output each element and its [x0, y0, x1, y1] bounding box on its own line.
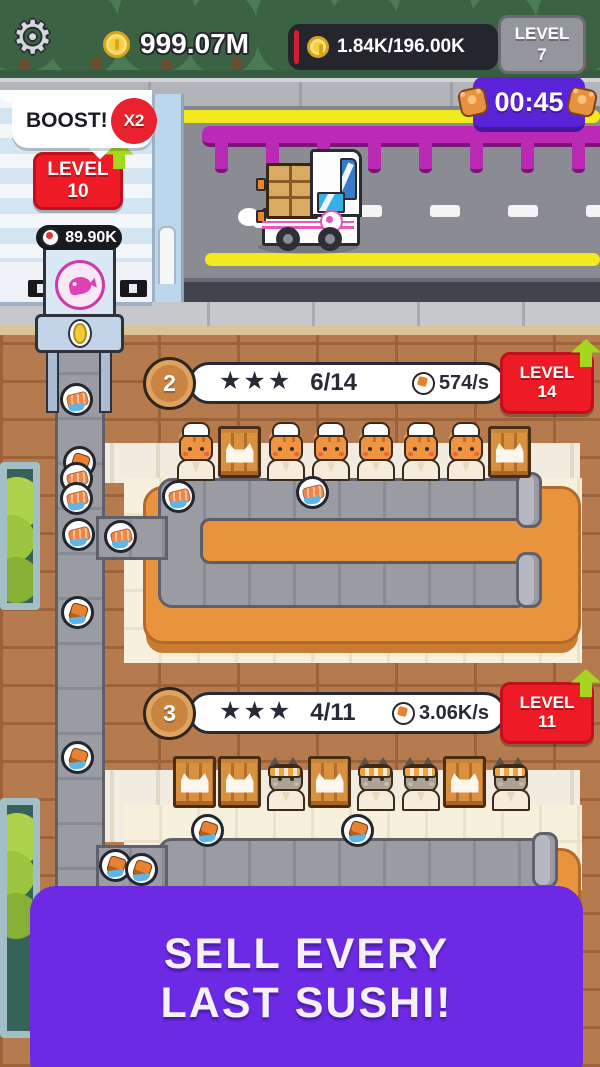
coin-icon: [307, 36, 329, 58]
station-number-badge: 3: [143, 687, 196, 740]
station-slot: [262, 424, 307, 478]
gray-cat: [355, 758, 393, 808]
station-slot: [397, 754, 442, 808]
conveyor-loop-center: [200, 518, 533, 564]
chef-hat-icon: [362, 422, 390, 437]
machine-base: [35, 314, 124, 353]
guardrail-post: [368, 141, 381, 173]
sushi-plate: [341, 814, 374, 847]
player-level-badge[interactable]: LEVEL7: [498, 15, 586, 74]
cat-silhouette-icon: [226, 772, 254, 793]
boost-label: BOOST!: [26, 109, 108, 133]
timer-value: 00:45: [494, 87, 563, 118]
station-number-badge: 2: [143, 357, 196, 410]
chef-hat-icon: [317, 422, 345, 437]
sushi-plate: [125, 853, 158, 886]
locked-crate[interactable]: [308, 756, 351, 808]
order-progress: 4/11: [310, 699, 355, 727]
sushi-plate: [60, 482, 93, 515]
cat-body: [357, 459, 395, 481]
orange-cat: [265, 428, 303, 478]
orange-cat: [310, 428, 348, 478]
station-slot: [487, 754, 532, 808]
sushi-plate: [61, 596, 94, 629]
conveyor-roller: [516, 472, 542, 528]
guardrail-post: [470, 141, 483, 173]
guardrail-post: [521, 141, 534, 173]
station-2-header: 2 ★★★ 6/14 574/s LEVEL14: [143, 352, 594, 414]
headband-icon: [358, 766, 392, 778]
objective-banner[interactable]: SELL EVERY LAST SUSHI!: [30, 886, 583, 1067]
cat-head: [314, 434, 348, 462]
banner-line-2: LAST SUSHI!: [161, 979, 453, 1028]
machine-leg: [99, 345, 112, 413]
road-yellow-line-bottom: [205, 253, 600, 266]
sushi-plate: [191, 814, 224, 847]
star-rating: ★★★: [219, 366, 292, 396]
station-2-cats: [172, 424, 532, 478]
station-level-button[interactable]: LEVEL11: [500, 682, 594, 744]
chef-hat-icon: [182, 422, 210, 437]
cat-head: [449, 434, 483, 462]
production-rate: 3.06K/s: [419, 702, 489, 725]
cat-body: [402, 789, 440, 811]
headband-icon: [493, 766, 527, 778]
banner-line-1: SELL EVERY: [164, 930, 449, 979]
machine-leg: [46, 345, 59, 413]
cat-silhouette-icon: [181, 772, 209, 793]
cat-body: [267, 459, 305, 481]
fish-icon: [67, 274, 92, 295]
station-slot: [307, 424, 352, 478]
sushi-plate: [104, 520, 137, 553]
cat-body: [267, 789, 305, 811]
station-slot: [352, 754, 397, 808]
bush-window: [0, 462, 40, 610]
cat-head: [179, 434, 213, 462]
station-slot: [262, 754, 307, 808]
guardrail-post: [215, 141, 228, 173]
coin-balance: 999.07M: [103, 28, 249, 60]
sushi-icon: [41, 228, 60, 247]
coin-amount: 999.07M: [140, 28, 249, 60]
station-3-header: 3 ★★★ 4/11 3.06K/s LEVEL11: [143, 682, 594, 744]
station-slot: [217, 754, 262, 808]
truck-marker-light: [256, 178, 266, 191]
sushi-plate: [296, 476, 329, 509]
locked-crate[interactable]: [218, 756, 261, 808]
cat-silhouette-icon: [226, 442, 254, 463]
meter-value: 1.84K/196.00K: [337, 36, 465, 58]
sushi-plate: [61, 741, 94, 774]
orange-cat: [445, 428, 483, 478]
cat-silhouette-icon: [496, 442, 524, 463]
order-progress: 6/14: [310, 369, 357, 397]
station-info-pill: ★★★ 6/14 574/s: [188, 362, 506, 404]
chef-hat-icon: [452, 422, 480, 437]
station-slot: [307, 754, 352, 808]
sushi-plate: [162, 480, 195, 513]
storage-value: 89.90K: [65, 229, 117, 247]
guardrail-post: [419, 141, 432, 173]
storage-counter: 89.90K: [36, 225, 122, 250]
star-rating: ★★★: [219, 696, 292, 726]
cat-silhouette-icon: [316, 772, 344, 793]
cat-body: [177, 459, 215, 481]
station-slot: [217, 424, 262, 478]
gray-cat: [265, 758, 303, 808]
station-info-pill: ★★★ 4/11 3.06K/s: [188, 692, 506, 734]
orange-cat: [175, 428, 213, 478]
station-slot: [172, 424, 217, 478]
headband-icon: [268, 766, 302, 778]
coin-icon: [103, 31, 130, 58]
truck-wheel: [318, 227, 342, 251]
locked-crate[interactable]: [173, 756, 216, 808]
road-dash: [586, 205, 600, 217]
game-screen: 89.90K: [0, 0, 600, 1067]
meter-accent-bar: [294, 30, 299, 64]
upgrade-arrow-icon: [571, 339, 600, 367]
truck-wheel: [276, 227, 300, 251]
road-dash: [508, 205, 538, 217]
sushi-icon: [412, 372, 435, 395]
cat-body: [492, 789, 530, 811]
sushi-meter: 1.84K/196.00K: [288, 24, 498, 70]
sushi-machine[interactable]: [43, 247, 116, 323]
cat-head: [404, 434, 438, 462]
cat-body: [357, 789, 395, 811]
orange-cat: [400, 428, 438, 478]
gray-cat: [400, 758, 438, 808]
production-rate: 574/s: [439, 372, 489, 395]
cat-head: [359, 434, 393, 462]
fish-emblem: [55, 260, 105, 310]
locked-crate[interactable]: [443, 756, 486, 808]
headband-icon: [403, 766, 437, 778]
road-dash: [430, 205, 460, 217]
gray-cat: [490, 758, 528, 808]
station-slot: [442, 754, 487, 808]
station-slot: [352, 424, 397, 478]
chef-hat-icon: [272, 422, 300, 437]
settings-gear-icon[interactable]: ⚙: [12, 10, 53, 64]
cat-head: [269, 434, 303, 462]
station-slot: [172, 754, 217, 808]
building-pipe: [158, 226, 176, 284]
station-3-cats: [172, 754, 532, 808]
cat-body: [447, 459, 485, 481]
locked-crate[interactable]: [488, 426, 531, 478]
sushi-icon: [392, 702, 415, 725]
cat-silhouette-icon: [451, 772, 479, 793]
station-slot: [397, 424, 442, 478]
building-window: [120, 280, 147, 297]
coin-slot: [68, 319, 92, 348]
locked-crate[interactable]: [218, 426, 261, 478]
sushi-plate: [60, 383, 93, 416]
chef-hat-icon: [407, 422, 435, 437]
station-level-button[interactable]: LEVEL14: [500, 352, 594, 414]
conveyor-roller: [532, 832, 558, 888]
factory-level-button[interactable]: LEVEL10: [33, 152, 123, 210]
guardrail-post: [572, 141, 585, 173]
boost-bubble[interactable]: BOOST! X2: [12, 94, 153, 148]
station-slot: [442, 424, 487, 478]
station-slot: [487, 424, 532, 478]
cat-body: [402, 459, 440, 481]
boost-multiplier: X2: [111, 98, 157, 144]
orange-cat: [355, 428, 393, 478]
truck-cab: [310, 149, 362, 217]
sushi-plate: [62, 518, 95, 551]
conveyor-roller: [516, 552, 542, 608]
upgrade-arrow-icon: [571, 669, 600, 697]
